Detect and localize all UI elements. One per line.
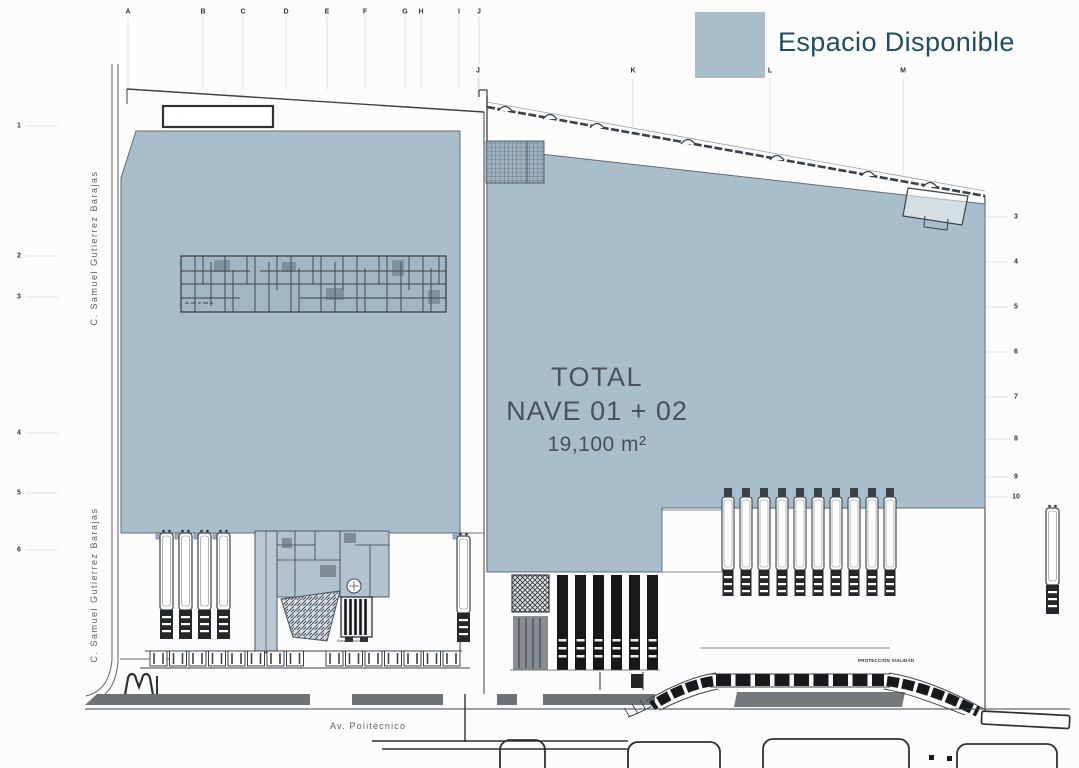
roof-access-hatch [486,141,544,183]
grid-letter: M [900,68,906,75]
grid-letter: E [325,9,330,16]
neighboring-buildings [500,739,1057,768]
grid-number: 5 [1014,304,1018,311]
grid-number: 4 [1014,259,1018,266]
grid-number: 1 [17,123,21,130]
total-subtitle: NAVE 01 + 02 [506,396,688,427]
grid-letter: H [418,9,423,16]
street-name-left-lower: C. Samuel Gutierrez Barajas [89,507,99,662]
grid-number: 5 [17,490,21,497]
grid-letter: K [630,68,635,75]
site-plan-drawing [0,0,1079,768]
legend-available-swatch [695,12,765,78]
grid-letter: F [363,9,367,16]
nave-02-available-space [486,141,985,572]
grid-number: 6 [17,547,21,554]
service-area-block [341,597,372,642]
grid-number: 4 [17,430,21,437]
dark-dock-doors [510,575,660,690]
grid-letter: J [476,68,480,75]
grid-number: 2 [17,253,21,260]
street-name-bottom: Av. Politécnico [330,721,406,731]
grid-letter: G [402,9,407,16]
grid-letter: C [240,9,245,16]
truck-ramp-guardrail [624,648,1070,729]
grid-number: 7 [1014,394,1018,401]
grid-letter: D [283,9,288,16]
legend-label: Espacio Disponible [778,27,1015,58]
sidewalk-band [85,694,655,705]
landscape-symbol [125,674,157,696]
street-name-left-upper: C. Samuel Gutierrez Barajas [89,170,99,325]
site-plan-canvas: Espacio Disponible TOTAL NAVE 01 + 02 19… [0,0,1079,768]
service-core [255,531,389,653]
grid-number: 8 [1014,436,1018,443]
grid-letter: J [477,9,481,16]
grid-letter: I [458,9,460,16]
grid-number: 9 [1014,474,1018,481]
parking-stalls [140,651,470,668]
grid-letter: L [768,68,772,75]
grid-letter: A [125,9,130,16]
grid-number: 3 [1014,214,1018,221]
lobby-hatch-triangle [281,591,340,641]
grid-number: 10 [1012,494,1020,501]
grid-letter: B [200,9,205,16]
road-protection-label: PROTECCIÓN VIALIDAD [858,658,914,663]
grid-number: 6 [1014,349,1018,356]
nave-01-office-detail [181,256,446,312]
total-area: 19,100 m² [547,433,646,457]
grid-number: 3 [17,294,21,301]
service-area-label: Área Servicios [337,638,363,643]
total-title: TOTAL [551,362,643,393]
dock-notch [662,510,722,572]
